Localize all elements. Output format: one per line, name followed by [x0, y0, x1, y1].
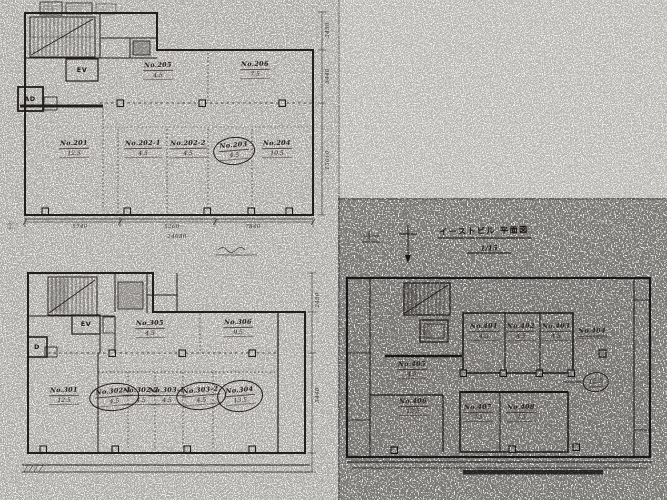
- room-label: No.405 4.5: [397, 361, 427, 380]
- room-number: No.306: [223, 319, 253, 328]
- room-label: No.406 12.5: [398, 398, 428, 417]
- floorplan-linework: [0, 0, 667, 500]
- room-label: No.204 10.5: [262, 140, 292, 159]
- room-area: 4.5: [143, 72, 173, 81]
- room-label: No.201 12.5: [59, 140, 89, 159]
- air-duct-label: AD: [24, 95, 35, 103]
- scan-noise-heavy: [338, 198, 667, 500]
- room-number: No.202-1: [124, 140, 162, 149]
- room-area: 7.5: [240, 71, 270, 80]
- room-label: No.301 12.5: [49, 387, 79, 406]
- room-area: 9.5: [223, 329, 253, 338]
- room-area: 4.5: [169, 149, 207, 158]
- room-label: No.205 4.5: [143, 62, 173, 81]
- room-area: 13.5: [225, 396, 255, 407]
- room-area: 4.5: [541, 333, 571, 342]
- dimension-label: 2450: [325, 22, 331, 38]
- dimension-total-label: 24080: [167, 234, 187, 240]
- room-area: 4.5: [182, 395, 220, 406]
- room-area: 12.5: [49, 397, 79, 406]
- room-number: No.406: [398, 398, 428, 407]
- room-number: No.204: [262, 140, 292, 149]
- room-label: No.206 7.5: [240, 61, 270, 80]
- duct-label: D: [34, 343, 40, 351]
- dimension-label: 13010: [325, 150, 331, 170]
- room-label: No.403 4.5: [541, 323, 571, 342]
- room-number: No.401: [469, 323, 499, 332]
- room-area: 4.5: [135, 330, 165, 339]
- room-label: No.202-2 4.5: [169, 140, 207, 159]
- room-label: No.407 7.5: [463, 404, 493, 423]
- dimension-label: 5740: [72, 224, 88, 230]
- room-label: No.404: [577, 327, 607, 338]
- dimension-label: 5440: [325, 68, 331, 84]
- room-area: 7.5: [506, 414, 536, 423]
- room-label: No.408 7.5: [506, 404, 536, 423]
- room-number: No.407: [463, 404, 493, 413]
- room-label: No.305 4.5: [135, 320, 165, 339]
- room-number: No.205: [143, 62, 173, 71]
- room-number: No.405: [397, 361, 427, 370]
- room-label: No.401 4.5: [469, 323, 499, 342]
- room-area: 4.5: [124, 149, 162, 158]
- room-label: No.402 4.5: [506, 323, 536, 342]
- room-area: 4.5: [469, 333, 499, 342]
- elevator-label: EV: [81, 320, 91, 328]
- room-label: No.306 9.5: [223, 319, 253, 338]
- room-number: No.201: [59, 140, 89, 149]
- room-number: No.403: [541, 323, 571, 332]
- room-area: 10.5: [262, 150, 292, 159]
- dimension-label: 5260: [164, 224, 180, 230]
- scan-noise-light-top: [338, 0, 667, 200]
- room-number: No.301: [49, 387, 79, 396]
- room-number: No.305: [135, 320, 165, 329]
- room-number: No.402: [506, 323, 536, 332]
- scanned-floorplan-sheet: No.205 4.5 No.206 7.5 No.201 12.5 No.202…: [0, 0, 667, 500]
- room-area: 7.5: [463, 414, 493, 423]
- room-area: 12.5: [398, 408, 428, 417]
- room-area: 4.5: [219, 151, 249, 162]
- room-number: No.202-2: [169, 140, 207, 149]
- room-area: 12.5: [59, 150, 89, 159]
- room-number: No.206: [240, 61, 270, 70]
- east-plan-scale: 1/15: [480, 243, 497, 253]
- room-number: No.408: [506, 404, 536, 413]
- dimension-label: 7840: [245, 224, 261, 230]
- elevator-label: EV: [77, 66, 87, 74]
- room-area: 4.5: [506, 333, 536, 342]
- room-label: No.202-1 4.5: [124, 140, 162, 159]
- area-note-value: 12.5: [588, 377, 603, 387]
- dimension-label: 5440: [315, 387, 321, 403]
- room-area: 4.5: [397, 371, 427, 380]
- dimension-label: 2450: [315, 292, 321, 308]
- east-plan-title: イーストビル 平面図: [439, 224, 529, 237]
- room-number: No.404: [577, 327, 607, 336]
